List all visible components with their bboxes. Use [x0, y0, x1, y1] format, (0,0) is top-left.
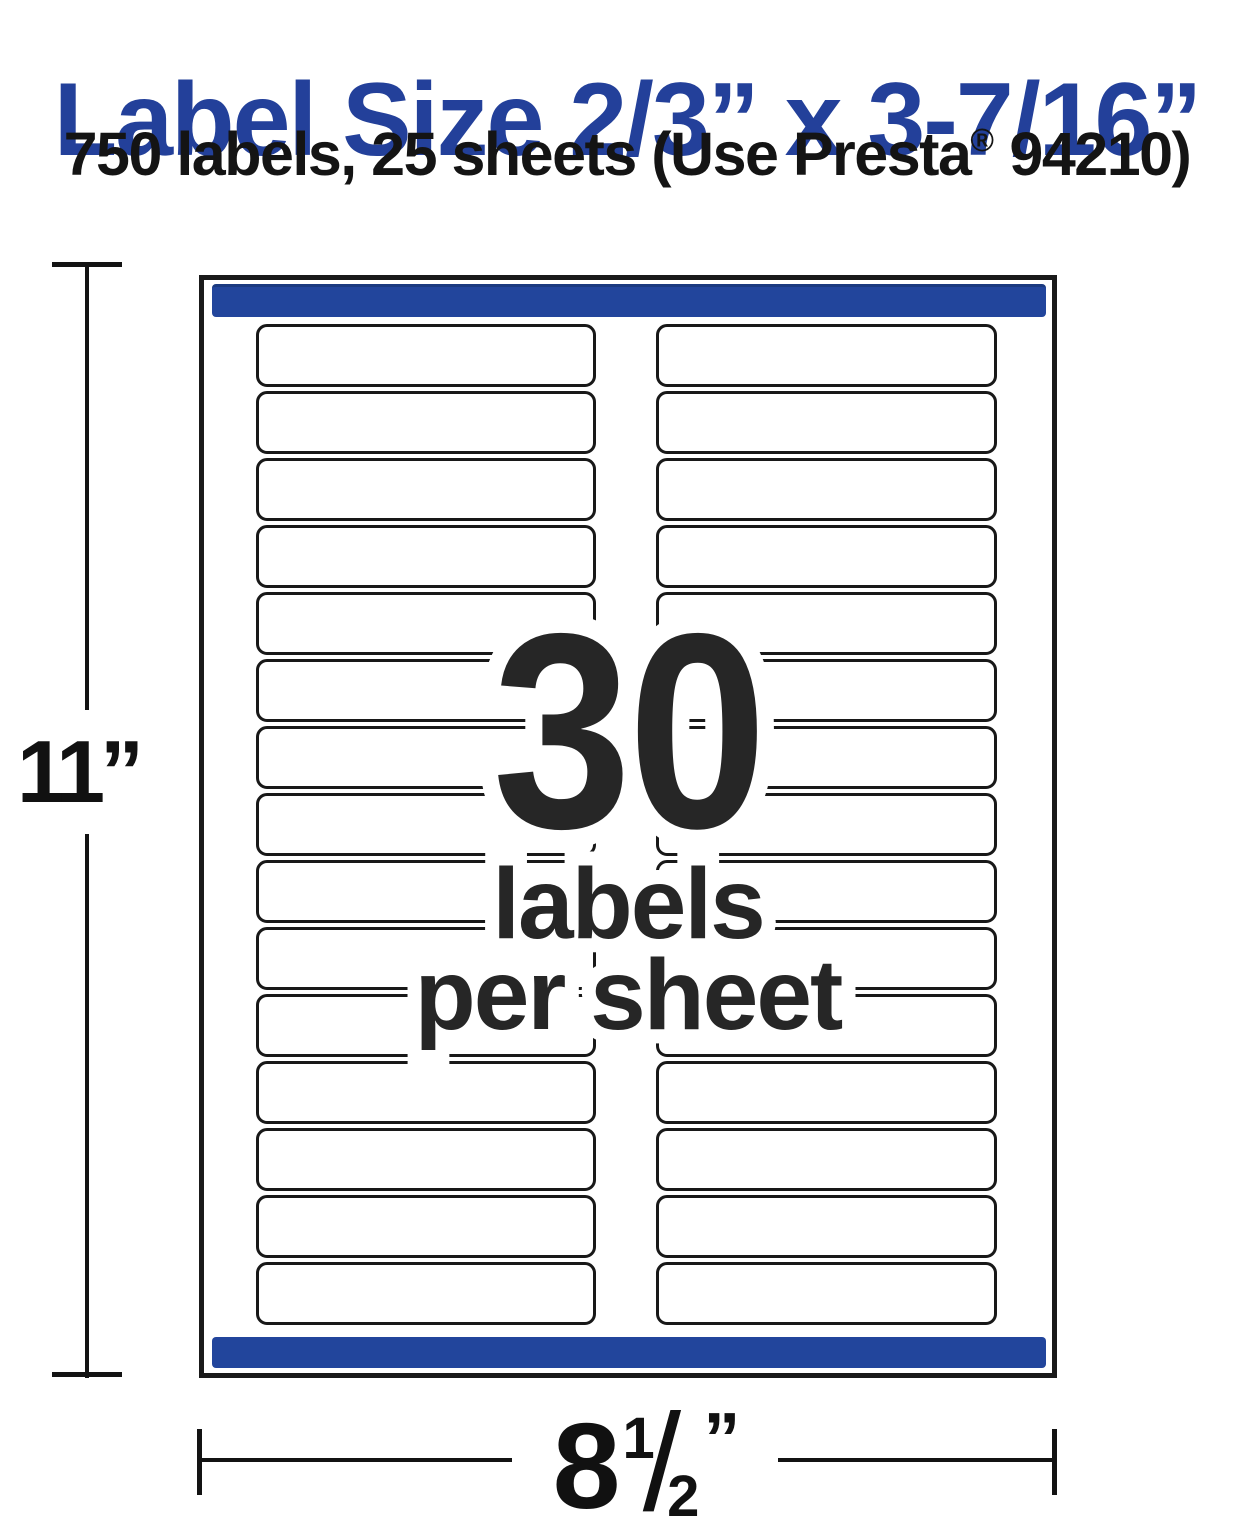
label-cell: [256, 1128, 596, 1191]
label-cell: [256, 726, 596, 789]
label-cell: [656, 324, 997, 387]
label-cell: [256, 324, 596, 387]
height-value-inch-mark: ”: [100, 728, 139, 816]
label-cell: [656, 525, 997, 588]
label-cell: [256, 860, 596, 923]
label-cell: [656, 1195, 997, 1258]
sheet-footer-bar: [212, 1337, 1046, 1368]
label-cell: [656, 391, 997, 454]
label-cell: [656, 860, 997, 923]
label-cell: [656, 793, 997, 856]
label-grid: [256, 324, 997, 1325]
label-sheet: [199, 275, 1057, 1378]
label-cell: [256, 1195, 596, 1258]
width-dimension-cap-right: [1052, 1429, 1057, 1495]
label-cell: [256, 1061, 596, 1124]
subtitle-prefix: 750 labels, 25 sheets (Use Presta: [64, 120, 971, 188]
label-cell: [256, 659, 596, 722]
height-value-number: 11: [17, 728, 100, 816]
width-dimension-cap-left: [197, 1429, 202, 1495]
width-value-whole: 8: [553, 1398, 621, 1534]
height-dimension-cap-top: [52, 262, 122, 267]
height-dimension-cap-bottom: [52, 1372, 122, 1377]
label-cell: [256, 1262, 596, 1325]
label-cell: [256, 391, 596, 454]
label-cell: [256, 592, 596, 655]
label-cell: [656, 726, 997, 789]
label-cell: [256, 793, 596, 856]
label-cell: [656, 1128, 997, 1191]
label-cell: [256, 525, 596, 588]
label-cell: [656, 927, 997, 990]
label-cell: [656, 659, 997, 722]
width-value-inch-mark: ”: [703, 1397, 737, 1480]
label-cell: [256, 994, 596, 1057]
subtitle-suffix: 94210): [994, 120, 1190, 188]
label-cell: [656, 994, 997, 1057]
label-cell: [256, 458, 596, 521]
sheet-header-bar: [212, 284, 1046, 317]
label-cell: [656, 592, 997, 655]
label-cell: [656, 1061, 997, 1124]
width-value-denominator: 2: [667, 1464, 699, 1529]
subtitle: 750 labels, 25 sheets (Use Presta® 94210…: [0, 124, 1254, 185]
registered-trademark-symbol: ®: [970, 122, 994, 158]
label-cell: [656, 1262, 997, 1325]
label-cell: [656, 458, 997, 521]
label-cell: [256, 927, 596, 990]
width-value: 81/2”: [512, 1392, 778, 1500]
height-value: 11”: [6, 710, 150, 834]
